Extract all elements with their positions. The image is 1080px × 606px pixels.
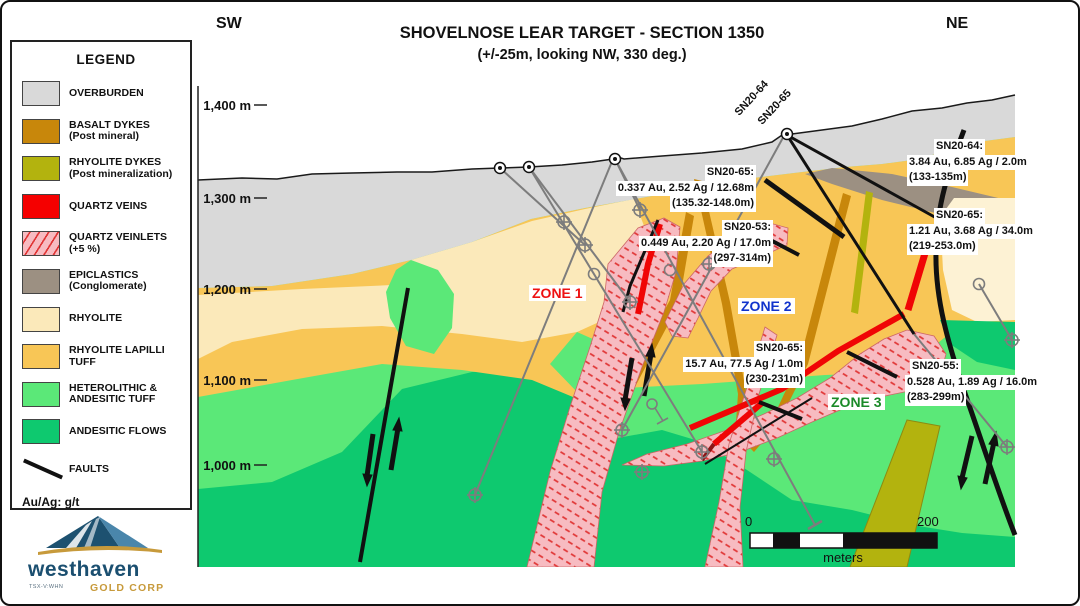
- logo-wordmark: westhaven: [28, 558, 140, 582]
- legend-item-quartz-veins: QUARTZ VEINS: [22, 194, 190, 219]
- cross-section-figure: SW NE SHOVELNOSE LEAR TARGET - SECTION 1…: [0, 0, 1080, 606]
- scale-end-label: 200: [917, 514, 939, 529]
- elevation-label-1100: 1,100 m: [194, 373, 251, 388]
- annotation-sn20-64: SN20-64:3.84 Au, 6.85 Ag / 2.0m(133-135m…: [907, 139, 1029, 186]
- scale-unit-label: meters: [797, 550, 889, 565]
- swatch-rhyolite-dykes: [22, 156, 60, 181]
- logo-ticker: TSX-V:WHN: [29, 584, 63, 590]
- direction-ne: NE: [946, 15, 968, 33]
- elevation-label-1300: 1,300 m: [194, 191, 251, 206]
- legend: LEGEND OVERBURDEN BASALT DYKES(Post mine…: [10, 40, 192, 510]
- zone-1-label: ZONE 1: [529, 285, 586, 301]
- legend-item-rhyolite: RHYOLITE: [22, 307, 190, 332]
- swatch-lapilli-tuff: [22, 344, 60, 369]
- elevation-label-1000: 1,000 m: [194, 458, 251, 473]
- legend-item-faults: FAULTS: [22, 457, 190, 482]
- legend-item-andesitic-flows: ANDESITIC FLOWS: [22, 419, 190, 444]
- page-subtitle: (+/-25m, looking NW, 330 deg.): [282, 47, 882, 63]
- logo-division: GOLD CORP: [90, 582, 164, 594]
- zone-2-label: ZONE 2: [738, 298, 795, 314]
- legend-item-basalt-dykes: BASALT DYKES(Post mineral): [22, 119, 190, 144]
- scale-bar: [750, 533, 937, 548]
- page-title: SHOVELNOSE LEAR TARGET - SECTION 1350: [282, 24, 882, 43]
- direction-sw: SW: [216, 15, 242, 33]
- annotation-sn20-53: SN20-53:0.449 Au, 2.20 Ag / 17.0m(297-31…: [639, 220, 773, 267]
- elevation-label-1200: 1,200 m: [194, 282, 251, 297]
- westhaven-logo: westhaven TSX-V:WHN GOLD CORP: [16, 508, 184, 596]
- elevation-label-1400: 1,400 m: [194, 98, 251, 113]
- fault-line-icon: [22, 457, 60, 482]
- swatch-quartz-veins: [22, 194, 60, 219]
- annotation-sn20-55: SN20-55:0.528 Au, 1.89 Ag / 16.0m(283-29…: [905, 359, 1039, 406]
- annotation-sn20-65-right: SN20-65:1.21 Au, 3.68 Ag / 34.0m(219-253…: [907, 208, 1035, 255]
- annotation-sn20-65-mid: SN20-65:15.7 Au, 77.5 Ag / 1.0m(230-231m…: [683, 341, 805, 388]
- swatch-epiclastics: [22, 269, 60, 294]
- legend-footnote: Au/Ag: g/t: [22, 495, 190, 509]
- logo-mountain-icon: [16, 508, 184, 558]
- swatch-rhyolite: [22, 307, 60, 332]
- legend-item-overburden: OVERBURDEN: [22, 81, 190, 106]
- legend-item-quartz-veinlets: QUARTZ VEINLETS(+5 %): [22, 231, 190, 256]
- swatch-quartz-veinlets: [22, 231, 60, 256]
- swatch-basalt-dykes: [22, 119, 60, 144]
- legend-title: LEGEND: [22, 52, 190, 67]
- legend-item-rhyolite-dykes: RHYOLITE DYKES(Post mineralization): [22, 156, 190, 181]
- swatch-heterolithic-tuff: [22, 382, 60, 407]
- zone-3-label: ZONE 3: [828, 394, 885, 410]
- annotation-sn20-65-upper: SN20-65:0.337 Au, 2.52 Ag / 12.68m(135.3…: [616, 165, 756, 212]
- legend-item-epiclastics: EPICLASTICS(Conglomerate): [22, 269, 190, 294]
- swatch-overburden: [22, 81, 60, 106]
- scale-start-label: 0: [745, 514, 752, 529]
- legend-item-lapilli-tuff: RHYOLITE LAPILLI TUFF: [22, 344, 190, 369]
- legend-item-heterolithic-tuff: HETEROLITHIC & ANDESITIC TUFF: [22, 382, 190, 407]
- swatch-andesitic-flows: [22, 419, 60, 444]
